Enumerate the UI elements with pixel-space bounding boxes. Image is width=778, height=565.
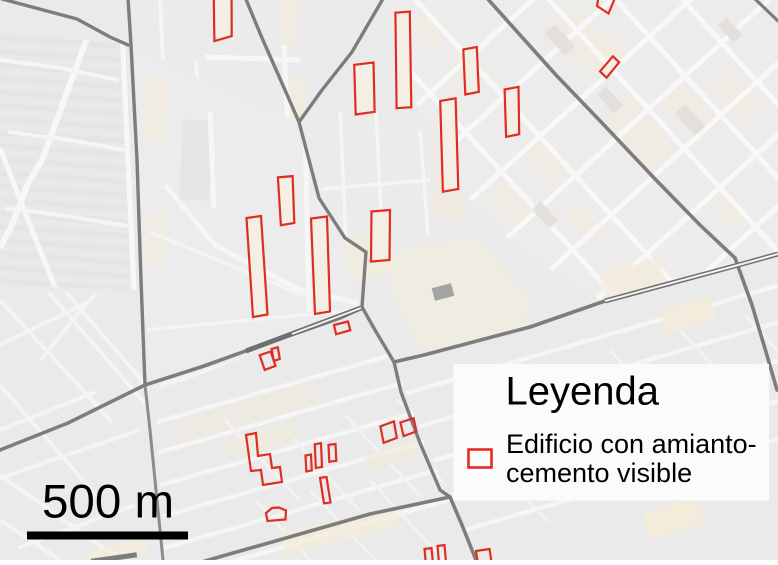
svg-text:Edificio con amianto-: Edificio con amianto- xyxy=(506,429,757,459)
svg-text:cemento visible: cemento visible xyxy=(506,458,692,488)
svg-text:Leyenda: Leyenda xyxy=(506,370,660,414)
svg-text:500 m: 500 m xyxy=(42,476,174,529)
